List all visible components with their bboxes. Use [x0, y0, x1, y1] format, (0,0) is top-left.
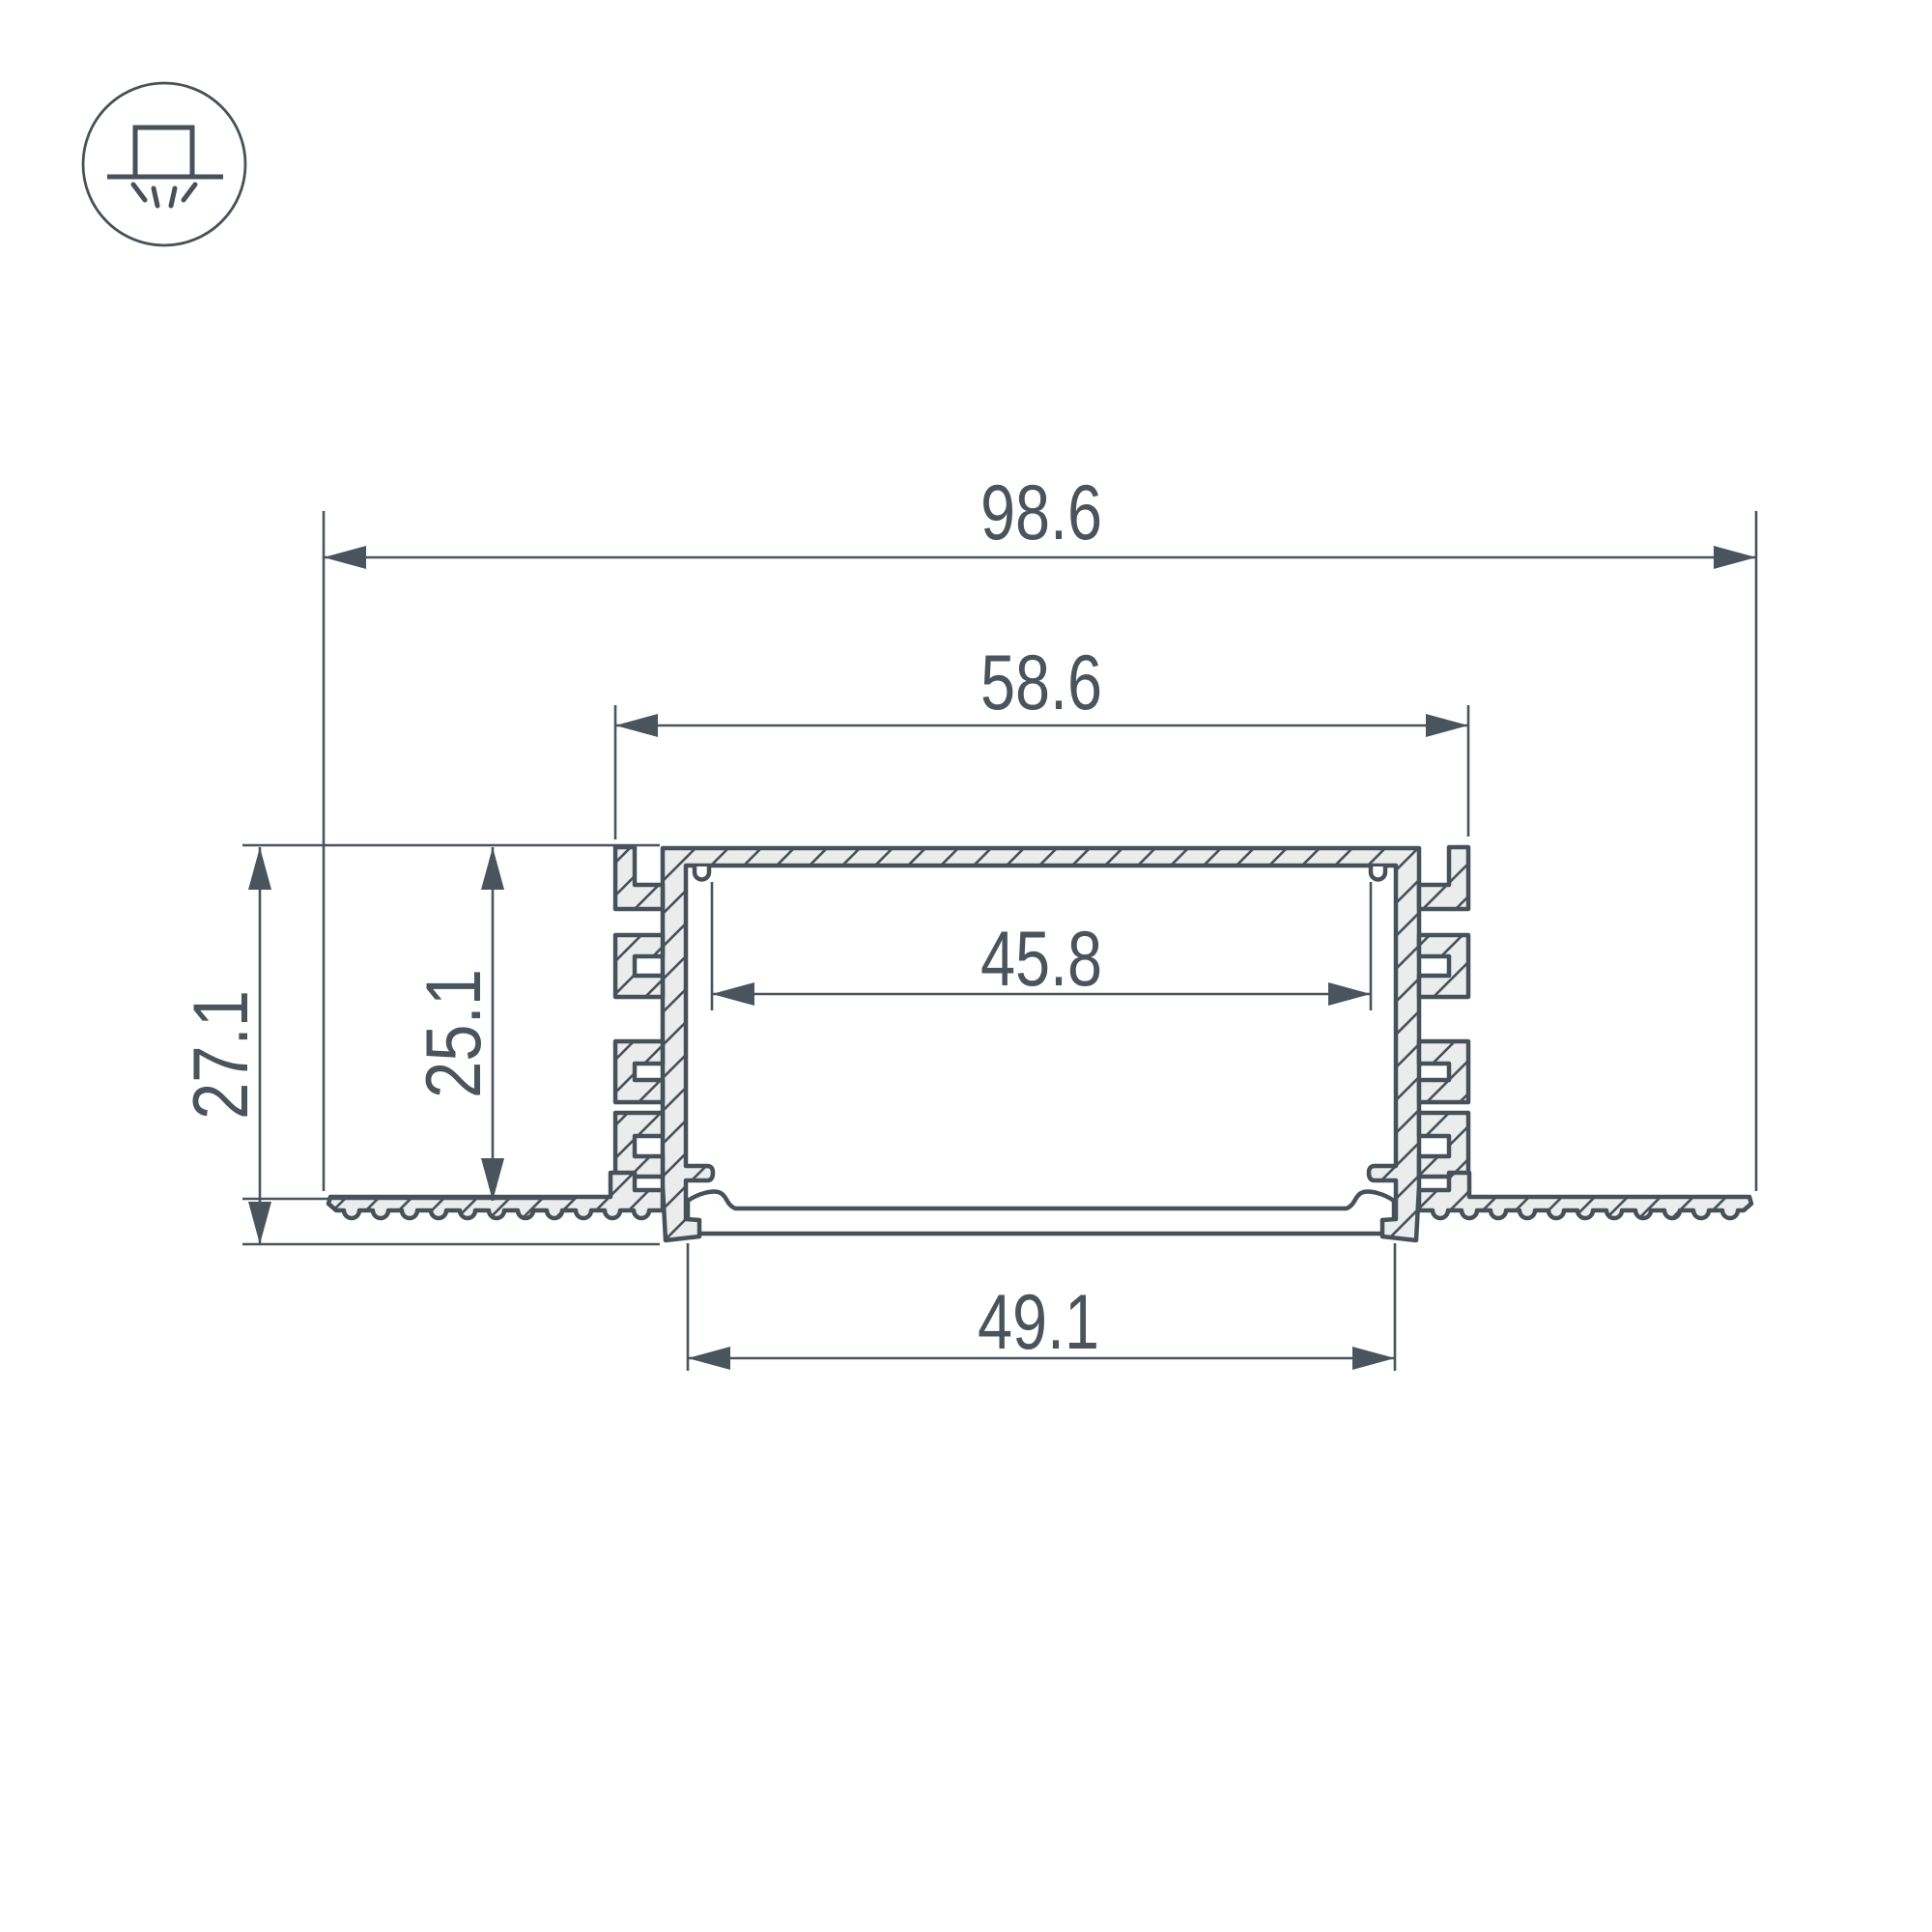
svg-text:27.1: 27.1: [178, 990, 265, 1120]
svg-text:98.6: 98.6: [980, 469, 1102, 556]
svg-text:45.8: 45.8: [980, 916, 1102, 1003]
svg-text:58.6: 58.6: [980, 639, 1102, 726]
svg-text:25.1: 25.1: [411, 969, 497, 1098]
svg-text:49.1: 49.1: [978, 1279, 1099, 1366]
